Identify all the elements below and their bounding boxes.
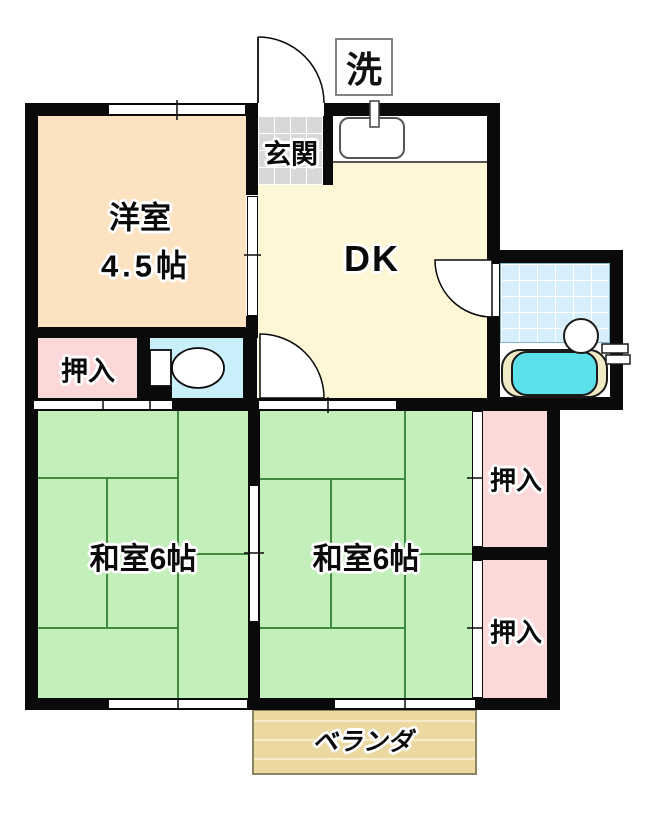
laundry-box: 洗 (335, 38, 393, 96)
closet-left-label: 押入 (61, 350, 115, 389)
laundry-label: 洗 (346, 41, 382, 93)
wall-closet-right (547, 398, 560, 710)
japanese-room-left-label: 和室6帖 (90, 534, 197, 578)
bathroom-tiled-area (500, 263, 610, 343)
tatami-line (260, 627, 405, 629)
veranda-label: ベランダ (311, 722, 419, 758)
wall-top-right (324, 103, 500, 116)
kitchen-sink-icon (339, 117, 405, 159)
wall-bath-bottom (490, 397, 623, 410)
japanese-room-right-label: 和室6帖 (313, 534, 420, 578)
tatami-line (260, 478, 405, 480)
veranda-door-right (334, 699, 476, 709)
wall-closet-toilet-divider (137, 327, 150, 398)
genkan-label: 玄関 (264, 133, 318, 172)
sliding-door-closet-toilet (33, 400, 173, 410)
wall-genkan-left (246, 103, 258, 195)
floor-plan: 洗 (0, 0, 646, 815)
dk-label: DK (344, 238, 400, 280)
wall-bottom (25, 698, 560, 710)
wall-bath-right (610, 250, 623, 410)
tatami-line (38, 477, 178, 479)
western-room-size-label: 4.5帖 (101, 241, 191, 286)
wall-genkan-right (323, 116, 333, 185)
wall-bath-top (490, 250, 623, 263)
western-room-label: 洋室 (109, 193, 171, 238)
wall-toilet-notch (150, 386, 172, 398)
fusuma-between-rooms (249, 485, 259, 622)
entrance-door-swing (258, 37, 324, 103)
sliding-door-western-dk (247, 196, 258, 316)
closet-upper-right-label: 押入 (490, 461, 542, 498)
sliding-door-dk-japanese (258, 400, 397, 410)
window-western-room (108, 104, 246, 115)
closet-lower-door (472, 560, 483, 698)
tatami-line (38, 627, 178, 629)
wall-toilet-right (243, 327, 257, 398)
veranda-window-left (108, 699, 248, 709)
dk-floor (258, 163, 487, 398)
bath-door-opening (488, 263, 500, 317)
closet-upper-door (472, 411, 483, 547)
closet-lower-right-label: 押入 (490, 613, 542, 650)
